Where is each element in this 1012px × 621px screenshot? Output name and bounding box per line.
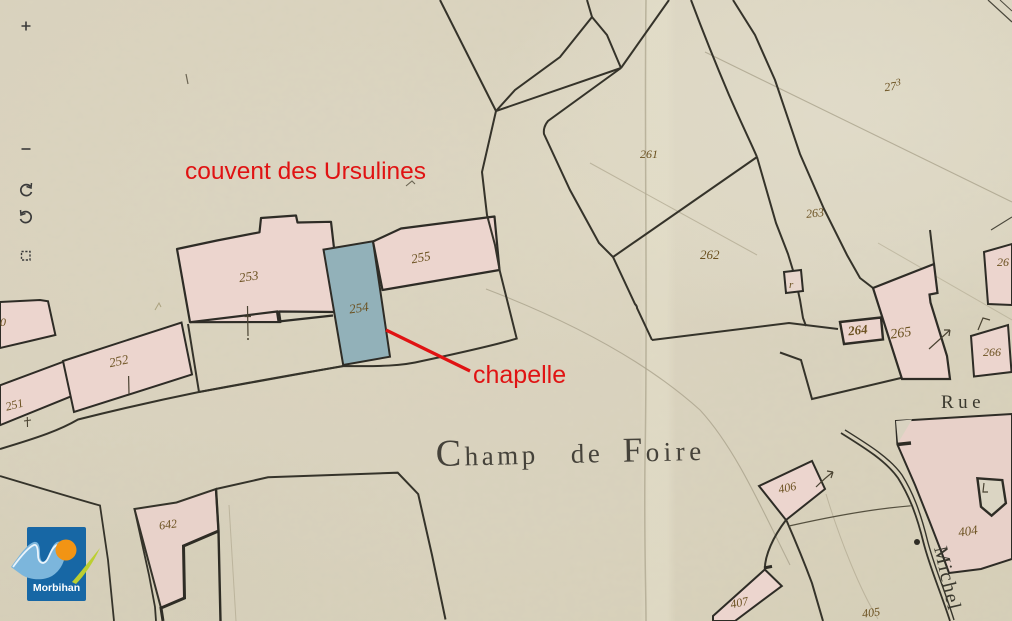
svg-text:642: 642 bbox=[158, 516, 178, 532]
svg-text:264: 264 bbox=[846, 321, 868, 338]
svg-text:263: 263 bbox=[805, 205, 824, 221]
svg-text:0: 0 bbox=[0, 315, 6, 329]
svg-text:Rue: Rue bbox=[941, 392, 985, 413]
svg-text:253: 253 bbox=[238, 267, 260, 285]
svg-text:r: r bbox=[789, 279, 794, 291]
svg-text:261: 261 bbox=[640, 147, 658, 161]
svg-text:chapelle: chapelle bbox=[473, 361, 566, 389]
svg-text:262: 262 bbox=[700, 247, 720, 262]
svg-text:Morbihan: Morbihan bbox=[33, 582, 80, 594]
svg-text:254: 254 bbox=[348, 299, 370, 317]
svg-text:26: 26 bbox=[997, 255, 1009, 269]
svg-text:couvent des Ursulines: couvent des Ursulines bbox=[185, 158, 426, 185]
svg-text:405: 405 bbox=[861, 604, 881, 620]
svg-text:404: 404 bbox=[957, 522, 979, 540]
svg-text:266: 266 bbox=[983, 345, 1001, 359]
svg-text:265: 265 bbox=[889, 325, 912, 343]
